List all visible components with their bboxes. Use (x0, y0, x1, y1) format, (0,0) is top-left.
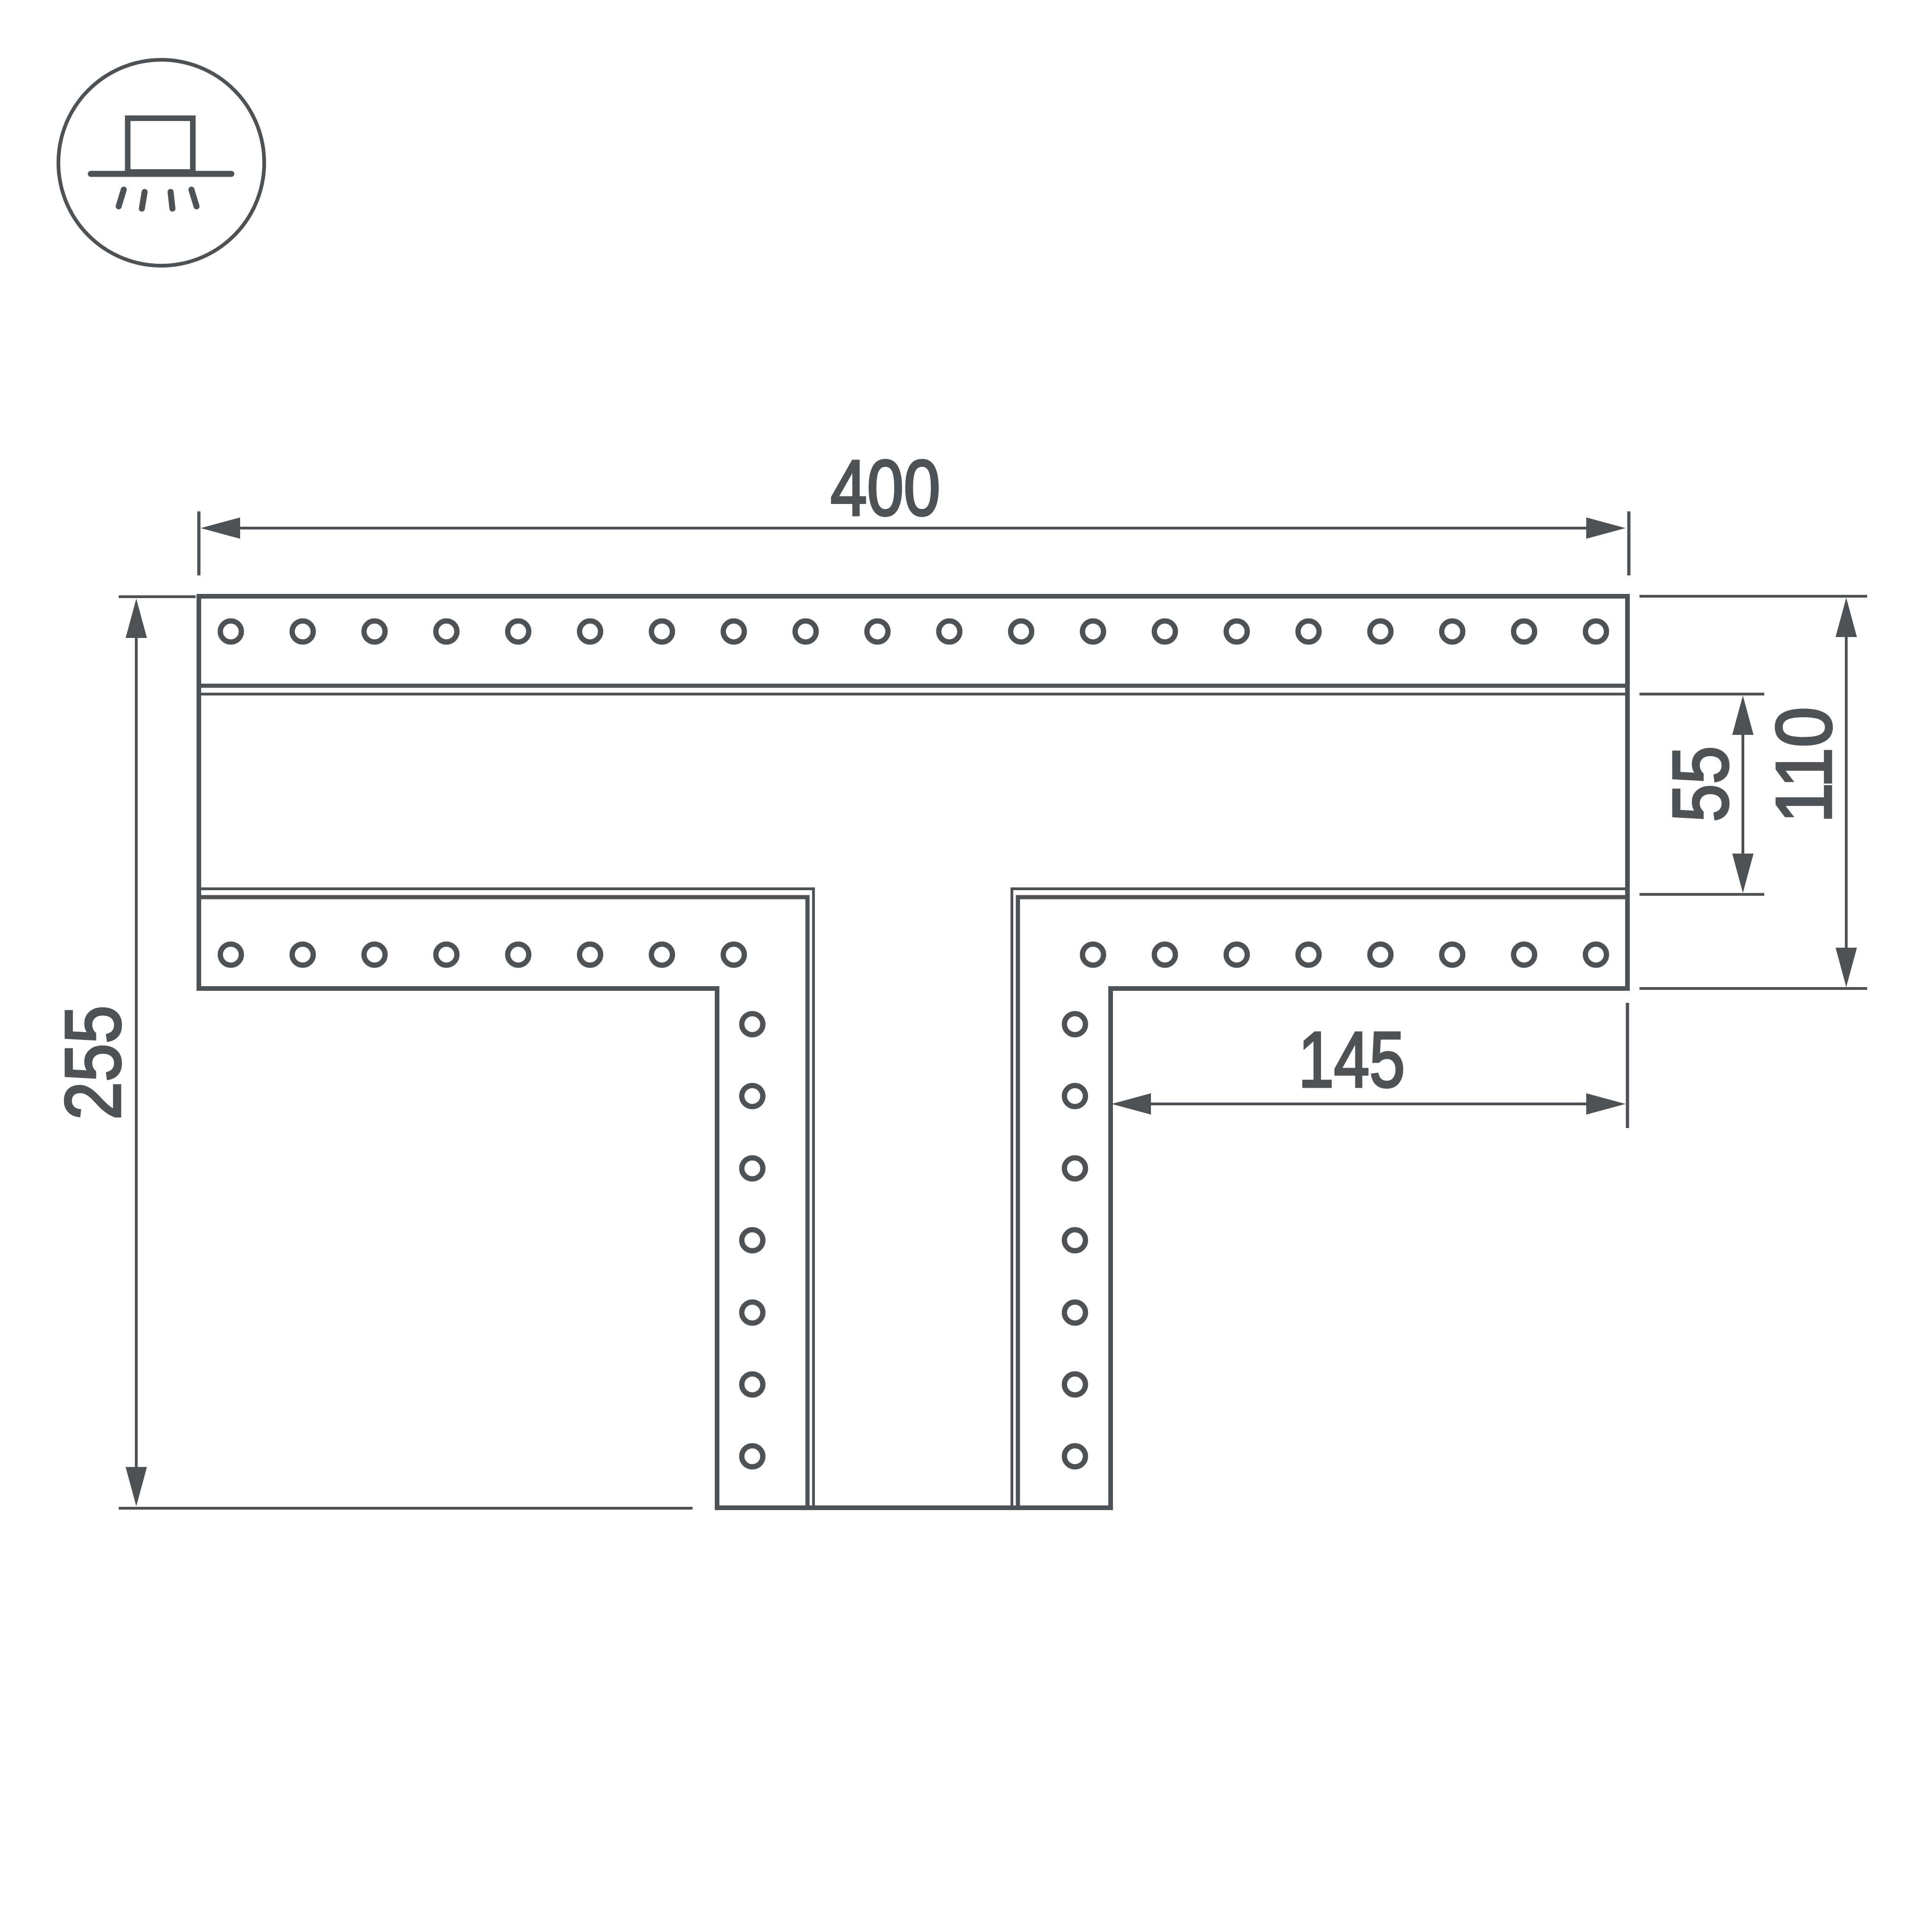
svg-text:55: 55 (1657, 746, 1745, 822)
svg-text:400: 400 (831, 444, 941, 532)
svg-text:255: 255 (49, 1006, 137, 1120)
svg-text:110: 110 (1760, 707, 1848, 823)
svg-text:145: 145 (1298, 1016, 1405, 1104)
